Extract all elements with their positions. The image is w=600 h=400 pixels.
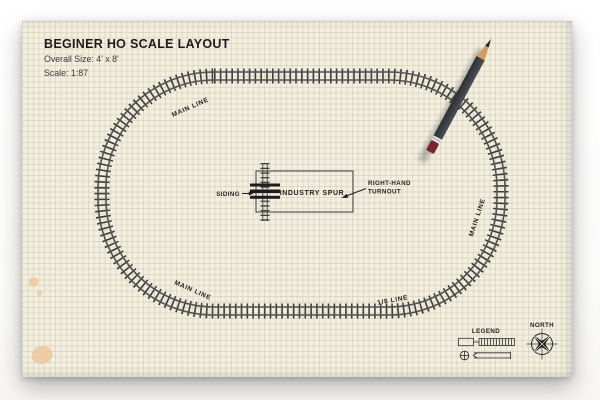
- label-industry-spur: INDUSTRY SPUR: [280, 190, 345, 197]
- stain-small: [29, 277, 39, 287]
- label-main-line-bottom-left: MAIN LINE: [173, 279, 212, 301]
- label-main-line-top: MAIN LINE: [171, 96, 210, 118]
- pencil-graphite-icon: [485, 38, 492, 47]
- stain-tiny: [37, 290, 43, 296]
- siding-stub-bars: [250, 184, 280, 199]
- siding-callout: SIDING: [216, 191, 253, 198]
- legend-track-symbol-icon: [459, 338, 515, 345]
- label-line-bottom: 1/8 LINE: [377, 294, 409, 306]
- legend-turnout-symbol-icon: [460, 351, 511, 360]
- stain-large: [30, 344, 54, 366]
- label-turnout-line2: TURNOUT: [368, 189, 401, 196]
- turnout-arrow-line: [345, 189, 366, 197]
- industry-spur-group: INDUSTRY SPUR: [250, 163, 353, 221]
- pencil-wood-tip-icon: [476, 37, 495, 61]
- compass: NORTH: [527, 322, 558, 360]
- label-turnout-line1: RIGHT-HAND: [368, 180, 411, 187]
- track-plan-canvas: MAIN LINE MAIN LINE MAIN LINE 1/8 LINE I…: [22, 21, 572, 377]
- legend: LEGEND: [459, 328, 515, 360]
- legend-title: LEGEND: [472, 328, 500, 335]
- compass-label: NORTH: [530, 322, 554, 329]
- drawing-sheet: BEGINER HO SCALE LAYOUT Overall Size: 4'…: [22, 21, 572, 377]
- label-siding: SIDING: [216, 191, 240, 198]
- compass-rose-icon: [527, 329, 558, 360]
- label-main-line-right: MAIN LINE: [468, 198, 487, 238]
- coffee-stains: [29, 277, 54, 366]
- turnout-callout: RIGHT-HAND TURNOUT: [342, 180, 411, 198]
